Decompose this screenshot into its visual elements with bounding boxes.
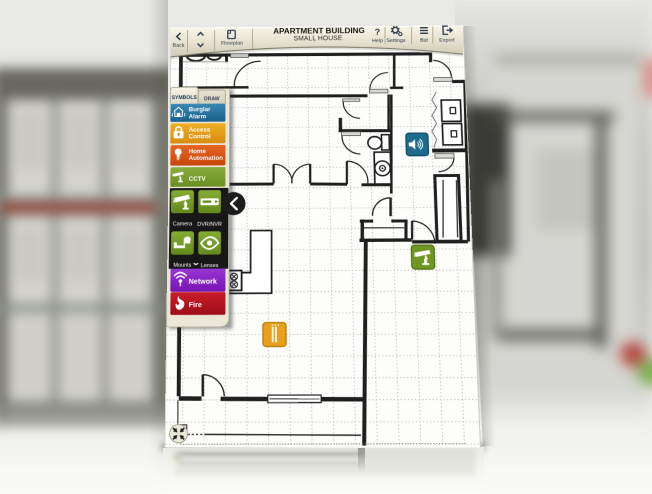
svg-text:Home: Home — [189, 149, 207, 155]
svg-text:DVR/NVR: DVR/NVR — [197, 221, 222, 227]
svg-text:Burglar: Burglar — [189, 107, 212, 113]
svg-text:Bid: Bid — [420, 38, 428, 44]
svg-text:Mounts: Mounts — [173, 263, 192, 269]
svg-text:APARTMENT BUILDING: APARTMENT BUILDING — [273, 26, 365, 35]
svg-text:SYMBOLS: SYMBOLS — [172, 95, 198, 101]
svg-text:Export: Export — [439, 38, 455, 44]
svg-text:Alarm: Alarm — [189, 114, 206, 120]
svg-text:Automation: Automation — [189, 156, 224, 162]
svg-text:SMALL HOUSE: SMALL HOUSE — [294, 35, 343, 42]
svg-text:Control: Control — [189, 134, 211, 140]
svg-text:Lenses: Lenses — [201, 263, 219, 269]
svg-text:DRAW: DRAW — [204, 96, 220, 102]
svg-text:Floorplan: Floorplan — [221, 41, 243, 47]
svg-text:Help: Help — [372, 38, 383, 44]
svg-text:Fire: Fire — [189, 302, 203, 310]
svg-text:CCTV: CCTV — [189, 177, 206, 183]
svg-text:Network: Network — [189, 279, 218, 287]
svg-text:Back: Back — [173, 43, 185, 49]
svg-text:Settings: Settings — [386, 38, 406, 44]
svg-text:?: ? — [374, 27, 380, 37]
svg-text:Camera: Camera — [173, 221, 193, 227]
svg-text:Access: Access — [189, 127, 211, 133]
